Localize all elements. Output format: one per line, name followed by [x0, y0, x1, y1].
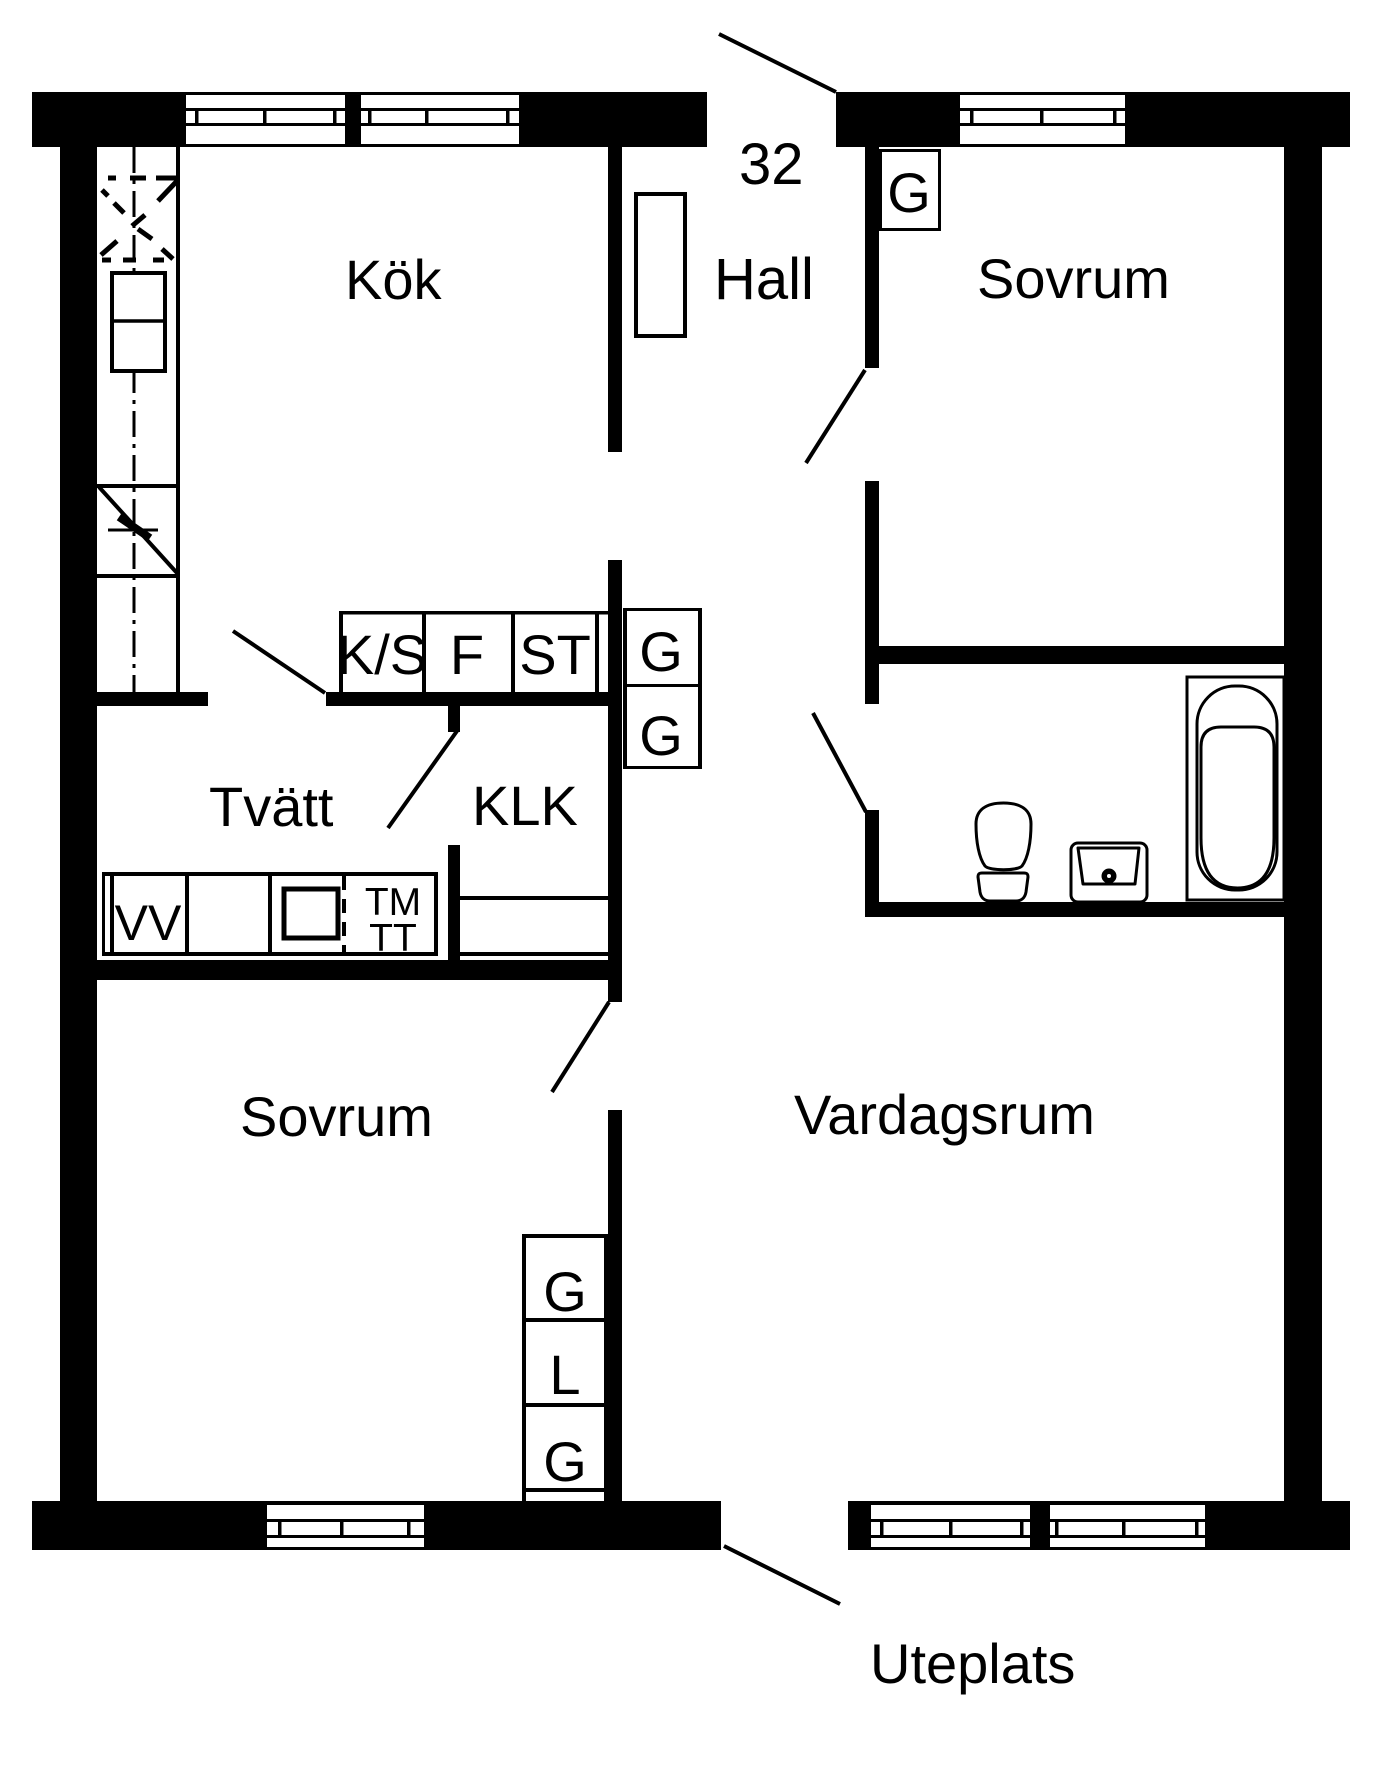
svg-text:ST: ST: [519, 623, 591, 686]
svg-text:Sovrum: Sovrum: [977, 247, 1170, 310]
svg-text:F: F: [450, 623, 484, 686]
svg-text:Sovrum: Sovrum: [240, 1085, 433, 1148]
svg-text:Tvätt: Tvätt: [209, 775, 334, 838]
svg-text:G: G: [639, 704, 683, 767]
svg-text:L: L: [549, 1343, 580, 1406]
svg-text:G: G: [639, 620, 683, 683]
svg-text:32: 32: [739, 132, 804, 197]
svg-text:Uteplats: Uteplats: [870, 1632, 1075, 1695]
svg-text:K/S: K/S: [337, 623, 427, 686]
svg-text:Vardagsrum: Vardagsrum: [794, 1083, 1095, 1146]
svg-text:KLK: KLK: [472, 774, 578, 837]
svg-text:G: G: [887, 161, 931, 224]
svg-text:Kök: Kök: [345, 248, 442, 311]
svg-text:G: G: [543, 1430, 587, 1493]
svg-text:Hall: Hall: [714, 247, 814, 312]
svg-text:VV: VV: [115, 895, 182, 951]
svg-text:G: G: [543, 1260, 587, 1323]
svg-text:TT: TT: [369, 917, 417, 960]
